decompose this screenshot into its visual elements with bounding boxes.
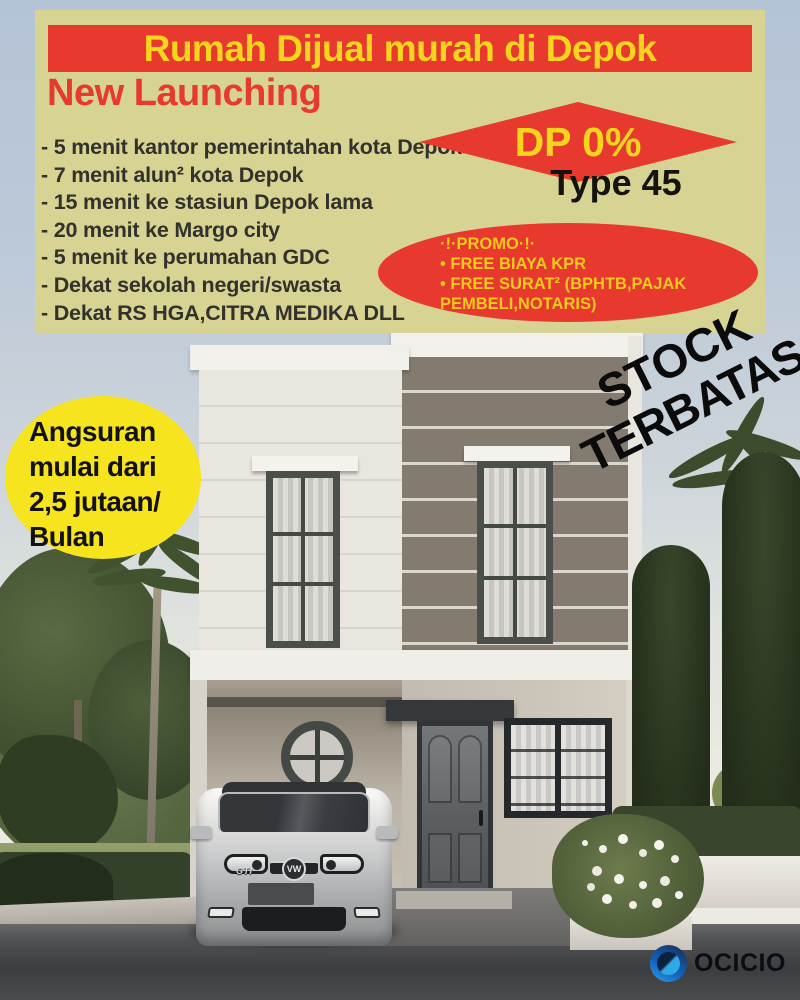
info-panel: Rumah Dijual murah di Depok New Launchin… [35,10,765,333]
installment-bubble: Angsuran mulai dari 2,5 jutaan/ Bulan [5,396,201,559]
car-mirror [190,826,212,839]
title-banner: Rumah Dijual murah di Depok [48,25,752,72]
dp-badge-label: DP 0% [515,119,642,166]
door-handle [479,810,483,826]
window-ledge [464,446,570,461]
door-panel [428,735,452,803]
promo-bubble: ·!·PROMO·!· • FREE BIAYA KPR • FREE SURA… [378,223,758,322]
window-ledge [252,456,358,471]
promo-header: ·!·PROMO·!· [440,234,734,254]
window-upper-left [266,471,340,648]
brand-lockup: OCICIO [650,945,786,982]
ocicio-logo-icon [650,945,687,982]
house-cornice [391,331,643,357]
door-panel [428,833,452,883]
car-headlight [320,854,364,874]
car-fog-light [353,907,381,918]
vw-logo-icon: VW [282,857,306,881]
carport-ceiling-shadow [207,697,402,707]
feature-item: - 15 menit ke stasiun Depok lama [41,189,462,217]
feature-item: - 20 menit ke Margo city [41,217,462,245]
car-fog-light [207,907,235,918]
car-lower-grille [242,907,346,931]
brand-name: OCICIO [694,949,786,978]
gti-badge: GTI [236,866,253,876]
poster-title: Rumah Dijual murah di Depok [144,28,657,70]
window-muntin [273,582,333,586]
door-step [396,891,512,909]
installment-line: mulai dari [29,449,201,484]
license-plate [248,883,314,905]
poster: GTI VW Rumah Dijual murah di Depok New L… [0,0,800,1000]
flower-bush [552,814,704,938]
promo-item: • FREE SURAT² (BPHTB,PAJAK PEMBELI,NOTAR… [440,274,734,314]
house-cornice [190,345,409,370]
window-mullion [513,468,517,637]
front-door [417,721,493,900]
feature-item: - 5 menit kantor pemerintahan kota Depok [41,134,462,162]
window-upper-right [477,461,553,644]
installment-line: 2,5 jutaan/ [29,484,201,519]
car: GTI VW [196,782,392,952]
promo-item: • FREE BIAYA KPR [440,254,734,274]
installment-line: Angsuran [29,414,201,449]
door-panel [458,735,482,803]
door-panel [458,833,482,883]
window-muntin [484,524,546,528]
door-canopy [386,700,514,721]
cypress-tree [722,452,800,840]
floor-divider-band [190,650,642,680]
installment-line: Bulan [29,519,201,554]
car-mirror [376,826,398,839]
feature-item: - Dekat RS HGA,CITRA MEDIKA DLL [41,300,462,328]
window-muntin [273,532,333,536]
feature-item: - 7 menit alun² kota Depok [41,162,462,190]
feature-list: - 5 menit kantor pemerintahan kota Depok… [41,134,462,327]
window-mullion [301,478,305,641]
cypress-tree [632,545,710,841]
window-mullion [555,725,561,811]
window-muntin [484,576,546,580]
car-windshield [218,792,370,832]
type-label: Type 45 [481,162,751,204]
new-launching-label: New Launching [47,72,321,115]
window-ground-floor [504,718,612,818]
